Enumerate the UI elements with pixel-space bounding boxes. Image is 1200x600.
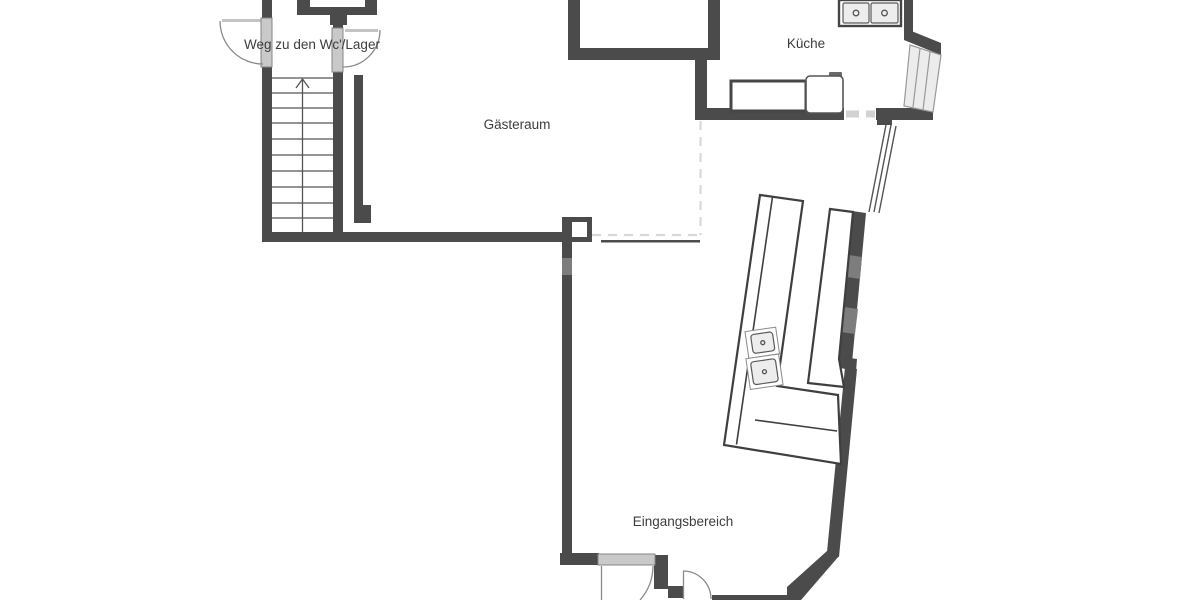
- kitchen-appliance: [806, 72, 843, 113]
- kitchen-counter: [731, 81, 806, 111]
- door-swing-arc: [683, 571, 711, 599]
- angled-window: [869, 125, 896, 213]
- kitchen-double-sink: [839, 0, 901, 26]
- room-label-weg-wc-lager: Weg zu den Wc'/Lager: [244, 37, 380, 52]
- staircase: [272, 78, 333, 232]
- room-label-gaesteraum: Gästeraum: [484, 117, 551, 132]
- entrance-left-wall: [562, 217, 700, 555]
- room-label-eingangsbereich: Eingangsbereich: [633, 514, 734, 529]
- entrance-door: [598, 554, 655, 600]
- door-swing-arc: [640, 566, 653, 600]
- room-label-kueche: Küche: [787, 36, 825, 51]
- floorplan-canvas: Weg zu den Wc'/Lager Gästeraum Küche Ein…: [0, 0, 1200, 600]
- bay-window: [904, 45, 941, 112]
- vestibule-door: [683, 571, 711, 599]
- door-leaf: [598, 554, 655, 565]
- floorplan-page: Weg zu den Wc'/Lager Gästeraum Küche Ein…: [0, 0, 1200, 600]
- wall-window: [562, 258, 572, 275]
